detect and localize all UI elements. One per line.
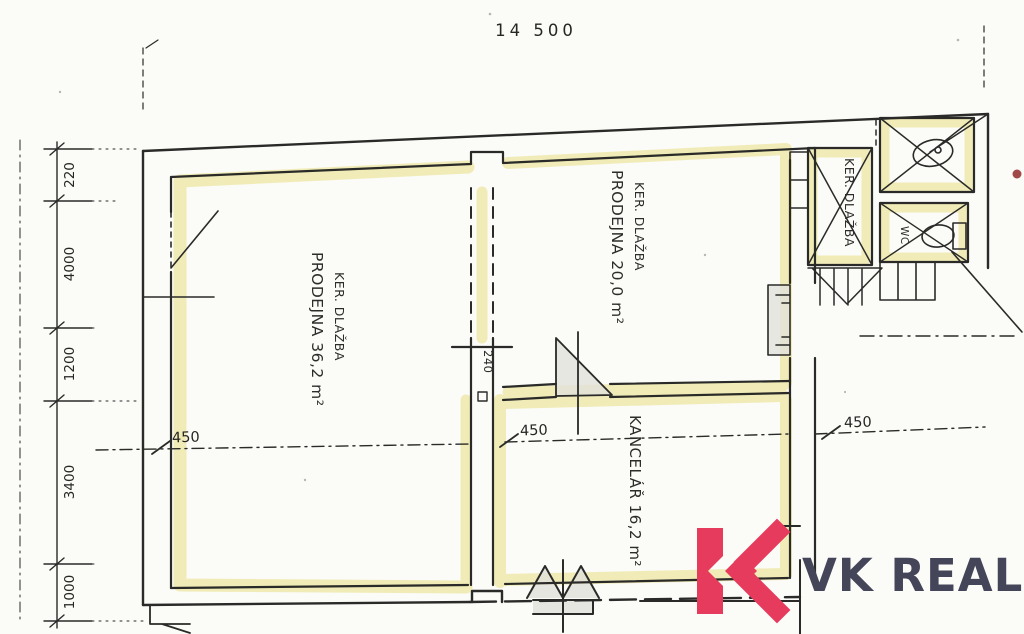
dim-left-4: 1000	[62, 575, 78, 609]
toilet-bowl	[921, 223, 955, 248]
entry-steps	[808, 268, 882, 305]
door-width-marker	[478, 392, 487, 401]
dim-left-2: 1200	[62, 347, 78, 381]
floorplan-drawing: 220 4000 1200 3400 1000 14 500 450 450 4…	[0, 0, 1024, 634]
room-label-kancelar: KANCELÁŘ 16,2 m²	[626, 415, 645, 567]
room-sublabel-prodejna-2: KER. DLAŽBA	[632, 182, 647, 271]
room-label-wc: WC	[898, 226, 910, 245]
room-sublabel-prodejna-1: KER. DLAŽBA	[332, 272, 347, 361]
dim-left-1: 4000	[62, 247, 78, 281]
vk-real-logo-text: VK REAL	[802, 549, 1023, 602]
steps-to-corridor	[790, 152, 808, 208]
room-labels: PRODEJNA 36,2 m² KER. DLAŽBA PRODEJNA 20…	[308, 158, 910, 567]
annex-rooms	[808, 26, 1022, 336]
room-label-prodejna-1: PRODEJNA 36,2 m²	[308, 252, 326, 407]
red-dot	[1013, 170, 1022, 179]
left-dimension-labels: 220 4000 1200 3400 1000	[62, 162, 78, 609]
scan-speckles	[59, 13, 960, 481]
sill-label-1: 450	[520, 423, 548, 440]
top-dimension-label: 14 500	[495, 21, 577, 40]
sill-label-0: 450	[172, 430, 200, 447]
dim-left-3: 3400	[62, 465, 78, 499]
room-label-chodba: KER. DLAŽBA	[842, 158, 857, 247]
sink-fixture	[911, 136, 956, 170]
dim-left-0: 220	[62, 162, 78, 188]
steps-below-wc	[880, 262, 935, 300]
door-width-label: 240	[481, 350, 495, 373]
room-label-prodejna-2: PRODEJNA 20,0 m²	[608, 170, 626, 325]
sill-label-2: 450	[844, 415, 872, 432]
floorplan-scan: 220 4000 1200 3400 1000 14 500 450 450 4…	[0, 0, 1024, 634]
left-dimension-chain	[20, 40, 158, 628]
